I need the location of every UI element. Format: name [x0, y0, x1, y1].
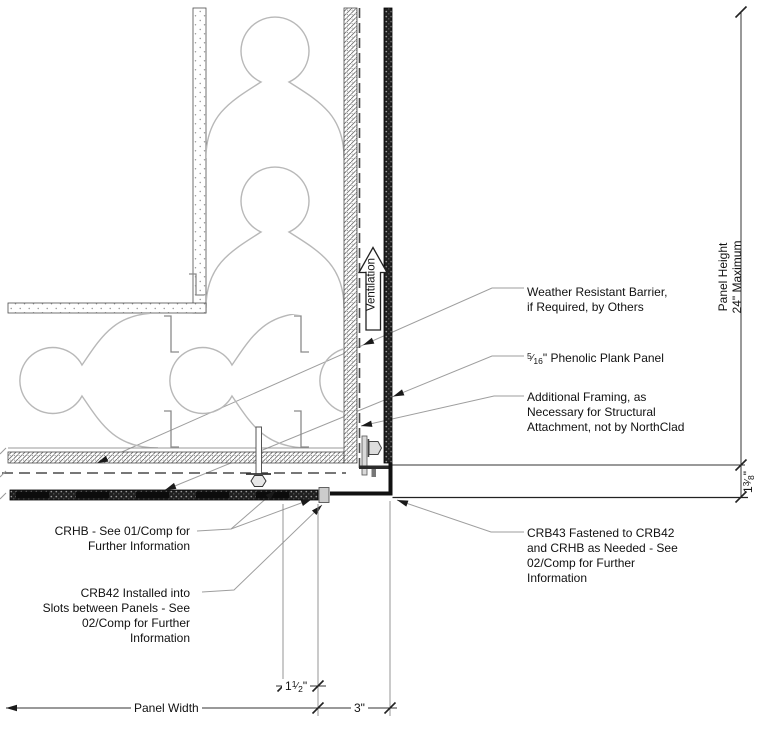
- note-line: CRHB - See 01/Comp for: [55, 524, 190, 539]
- wall-section: [193, 8, 392, 468]
- dim-panel-height: Panel Height 24" Maximum: [716, 234, 744, 320]
- fraction-denominator: 2: [298, 684, 303, 694]
- dim-line: Panel Height: [716, 237, 730, 317]
- leader-crb43-note: [397, 500, 524, 532]
- note-phenolic-panel: 5⁄16" Phenolic Plank Panel: [527, 351, 664, 367]
- note-line: if Required, by Others: [527, 300, 668, 315]
- leader-crhb-note-b: [231, 499, 312, 529]
- dim-panel-width: Panel Width: [131, 701, 202, 715]
- note-line: and CRHB as Needed - See: [527, 541, 678, 556]
- dim-corner-offset: 13⁄8": [741, 460, 757, 504]
- note-line: Additional Framing, as: [527, 390, 684, 405]
- note-crb43: CRB43 Fastened to CRB42 and CRHB as Need…: [527, 526, 678, 586]
- wall-batt-insulation: [206, 17, 344, 458]
- furring-channels: [164, 274, 309, 447]
- soffit-gypsum-layer: [8, 303, 206, 313]
- note-line: Slots between Panels - See: [43, 601, 190, 616]
- fraction-denominator: 16: [533, 356, 542, 366]
- note-line: " Phenolic Plank Panel: [543, 351, 664, 365]
- note-line: Information: [43, 631, 190, 646]
- note-line: Attachment, not by NorthClad: [527, 420, 684, 435]
- note-crhb: CRHB - See 01/Comp for Further Informati…: [55, 524, 190, 554]
- fraction-slash: ⁄: [743, 480, 754, 482]
- note-additional-framing: Additional Framing, as Necessary for Str…: [527, 390, 684, 435]
- wall-gypsum-layer: [193, 8, 206, 313]
- corner-trim: [330, 463, 748, 498]
- note-line: CRB43 Fastened to CRB42: [527, 526, 678, 541]
- wall-sheathing-layer: [344, 8, 357, 463]
- fraction-denominator: 8: [746, 475, 756, 480]
- note-line: Further Information: [55, 539, 190, 554]
- note-crb42: CRB42 Installed into Slots between Panel…: [43, 586, 190, 646]
- note-line: CRB42 Installed into: [43, 586, 190, 601]
- panel-joint-clip: [319, 488, 329, 503]
- note-line: Necessary for Structural: [527, 405, 684, 420]
- fraction-numerator: 3: [741, 482, 751, 487]
- dim-suffix: ": [303, 679, 307, 693]
- note-line: Weather Resistant Barrier,: [527, 285, 668, 300]
- ventilation-label: Ventilation: [366, 251, 379, 319]
- note-line: Information: [527, 571, 678, 586]
- leader-wrb-note: [97, 288, 524, 463]
- dim-whole: 1: [285, 679, 292, 693]
- dim-corner-return: 3": [351, 701, 368, 715]
- dim-whole: 1: [741, 486, 755, 493]
- soffit-sheathing-layer: [8, 452, 344, 463]
- dim-line: 24" Maximum: [730, 237, 744, 317]
- note-weather-barrier: Weather Resistant Barrier, if Required, …: [527, 285, 668, 315]
- dim-slot-offset: 11⁄2": [282, 679, 310, 695]
- detail-drawing-canvas: Weather Resistant Barrier, if Required, …: [0, 0, 768, 744]
- note-line: 02/Comp for Further: [43, 616, 190, 631]
- note-line: 02/Comp for Further: [527, 556, 678, 571]
- wall-phenolic-panel: [384, 8, 392, 463]
